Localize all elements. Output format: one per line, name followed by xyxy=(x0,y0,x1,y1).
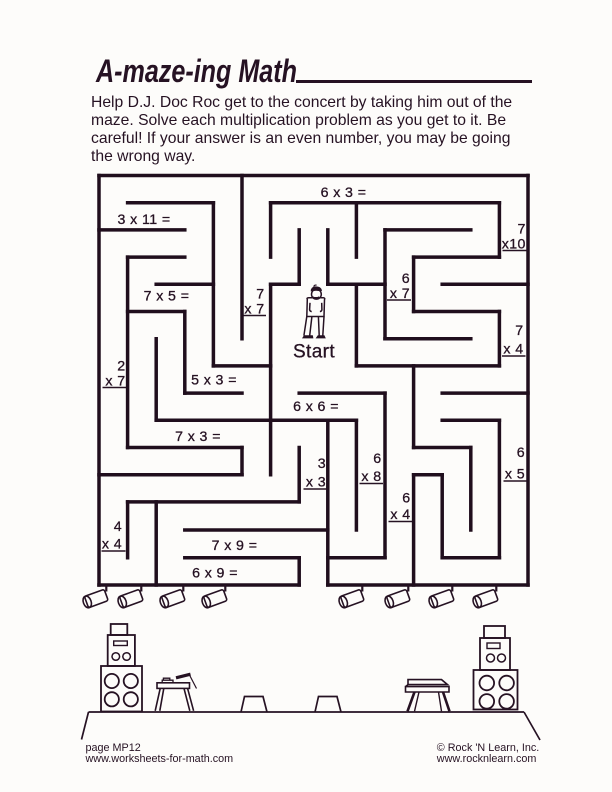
svg-text:7 x 5 =: 7 x 5 = xyxy=(144,289,190,305)
svg-text:7: 7 xyxy=(515,323,523,339)
svg-text:x 4: x 4 xyxy=(102,537,122,553)
svg-text:x 4: x 4 xyxy=(390,507,410,523)
svg-text:6 x 3 =: 6 x 3 = xyxy=(321,185,367,201)
svg-text:x 3: x 3 xyxy=(306,475,326,491)
svg-text:3: 3 xyxy=(318,456,326,472)
svg-text:7: 7 xyxy=(256,287,264,303)
svg-text:x 4: x 4 xyxy=(503,342,523,358)
svg-text:6 x 9 =: 6 x 9 = xyxy=(192,566,238,582)
svg-text:7: 7 xyxy=(518,222,526,238)
svg-text:x 8: x 8 xyxy=(361,469,381,485)
svg-text:Start: Start xyxy=(293,342,335,363)
svg-text:4: 4 xyxy=(114,519,122,535)
svg-text:3 x 11 =: 3 x 11 = xyxy=(117,212,170,228)
svg-text:6: 6 xyxy=(402,491,410,507)
svg-text:6: 6 xyxy=(373,451,381,467)
svg-text:7 x 9 =: 7 x 9 = xyxy=(212,538,258,554)
svg-text:7 x 3 =: 7 x 3 = xyxy=(175,429,221,445)
svg-text:6: 6 xyxy=(402,271,410,287)
svg-text:6: 6 xyxy=(517,445,525,461)
svg-text:2: 2 xyxy=(117,359,125,375)
svg-text:5 x 3 =: 5 x 3 = xyxy=(191,373,237,389)
svg-text:x 5: x 5 xyxy=(505,467,525,483)
svg-text:6 x 6 =: 6 x 6 = xyxy=(293,399,339,415)
